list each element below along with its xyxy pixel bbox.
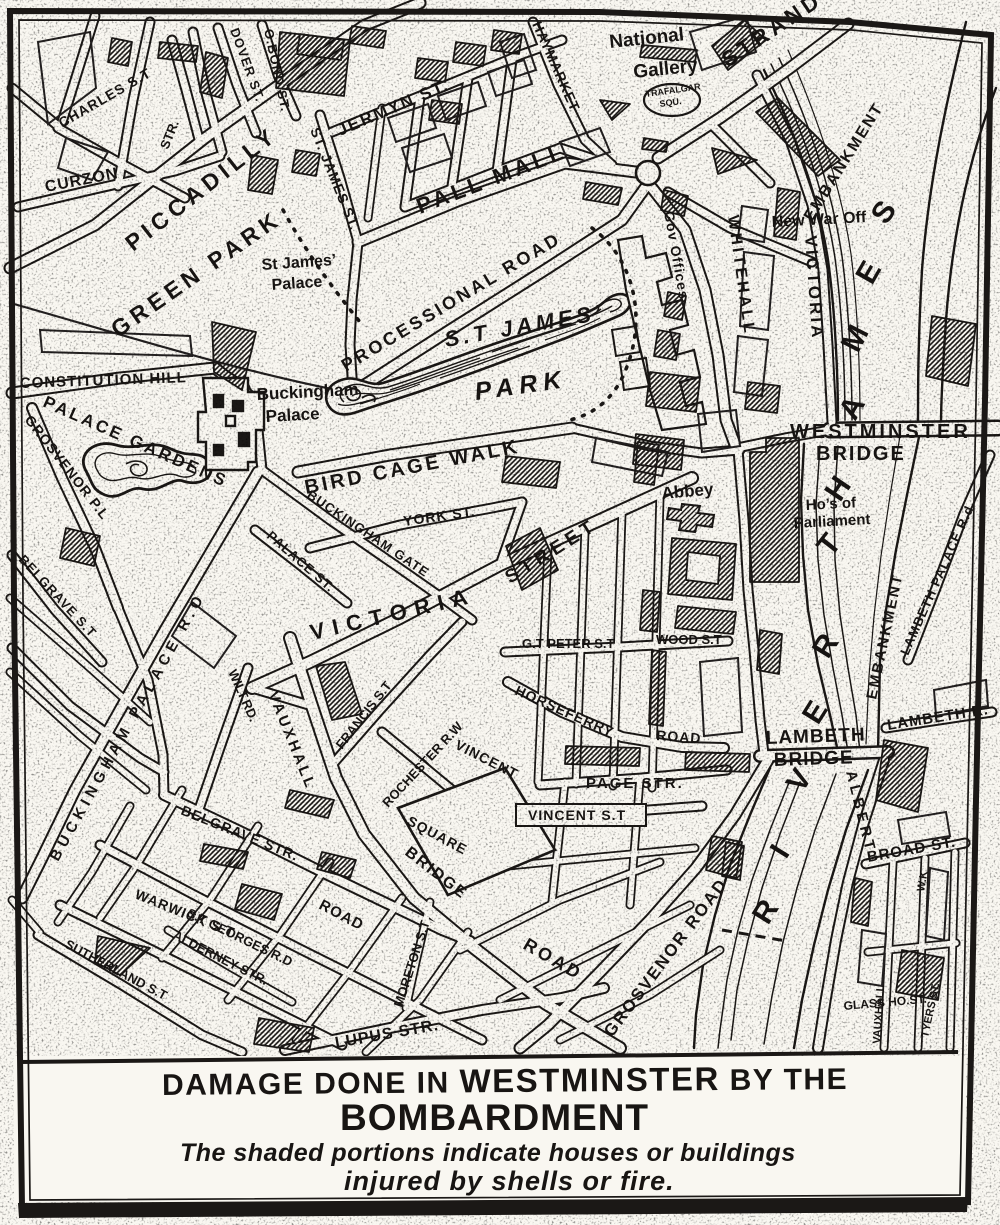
svg-text:injured by shells or fire.: injured by shells or fire.	[344, 1166, 675, 1196]
svg-text:BOMBARDMENT: BOMBARDMENT	[340, 1097, 649, 1138]
svg-text:The shaded portions indicate h: The shaded portions indicate houses or b…	[180, 1139, 796, 1167]
